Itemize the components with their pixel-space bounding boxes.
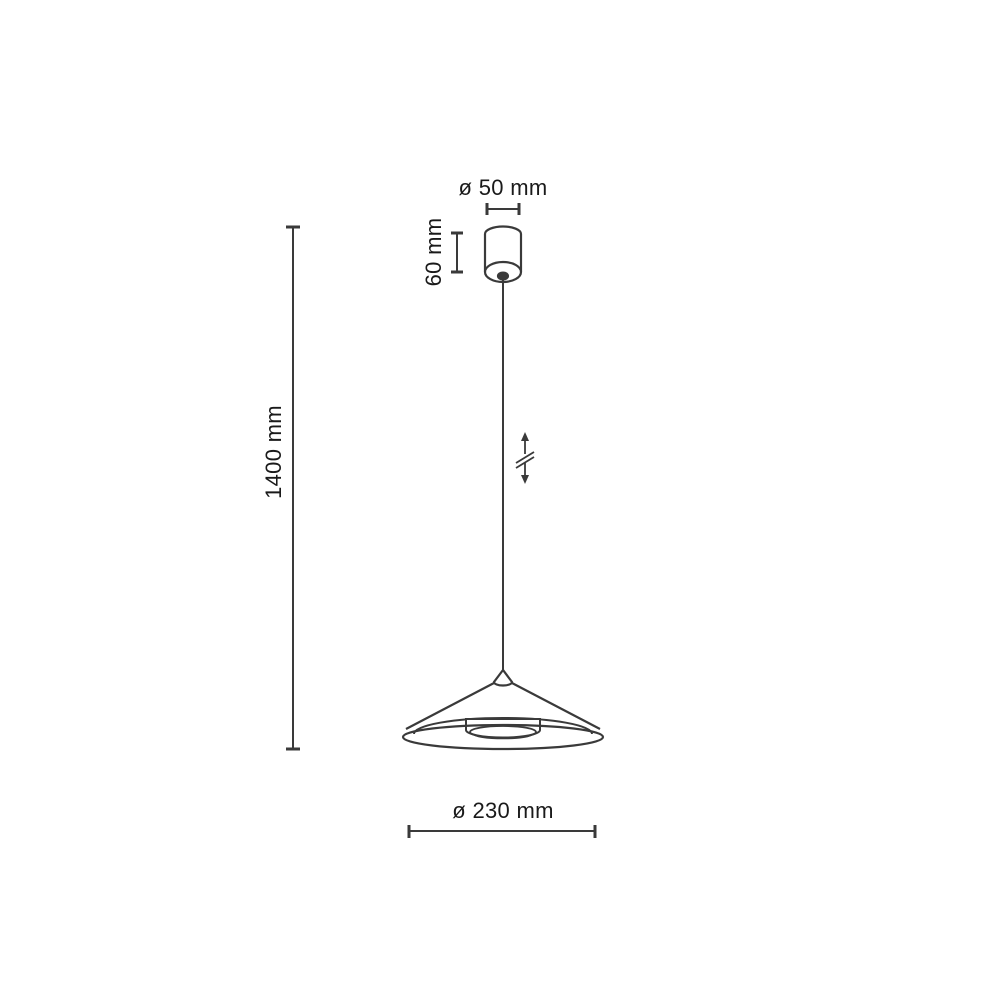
- diagram-linework: [0, 0, 1000, 1000]
- cord-grip-dot: [498, 273, 508, 280]
- lamp-shade: [403, 670, 603, 749]
- canopy-height-label: 60 mm: [421, 218, 447, 287]
- canopy-diameter-label: ø 50 mm: [459, 175, 548, 201]
- light-module: [466, 719, 540, 739]
- suspension-height-dimension-line: [286, 227, 300, 749]
- suspension-height-label: 1400 mm: [261, 405, 287, 499]
- shade-diameter-dimension-line: [409, 825, 595, 838]
- dimension-diagram: ø 50 mm 60 mm 1400 mm ø 230 mm: [0, 0, 1000, 1000]
- ceiling-canopy: [485, 227, 521, 283]
- height-adjustable-icon: [516, 432, 534, 484]
- canopy-diameter-dimension-line: [487, 203, 519, 215]
- shade-diameter-label: ø 230 mm: [452, 798, 553, 824]
- canopy-height-dimension-line: [451, 233, 463, 272]
